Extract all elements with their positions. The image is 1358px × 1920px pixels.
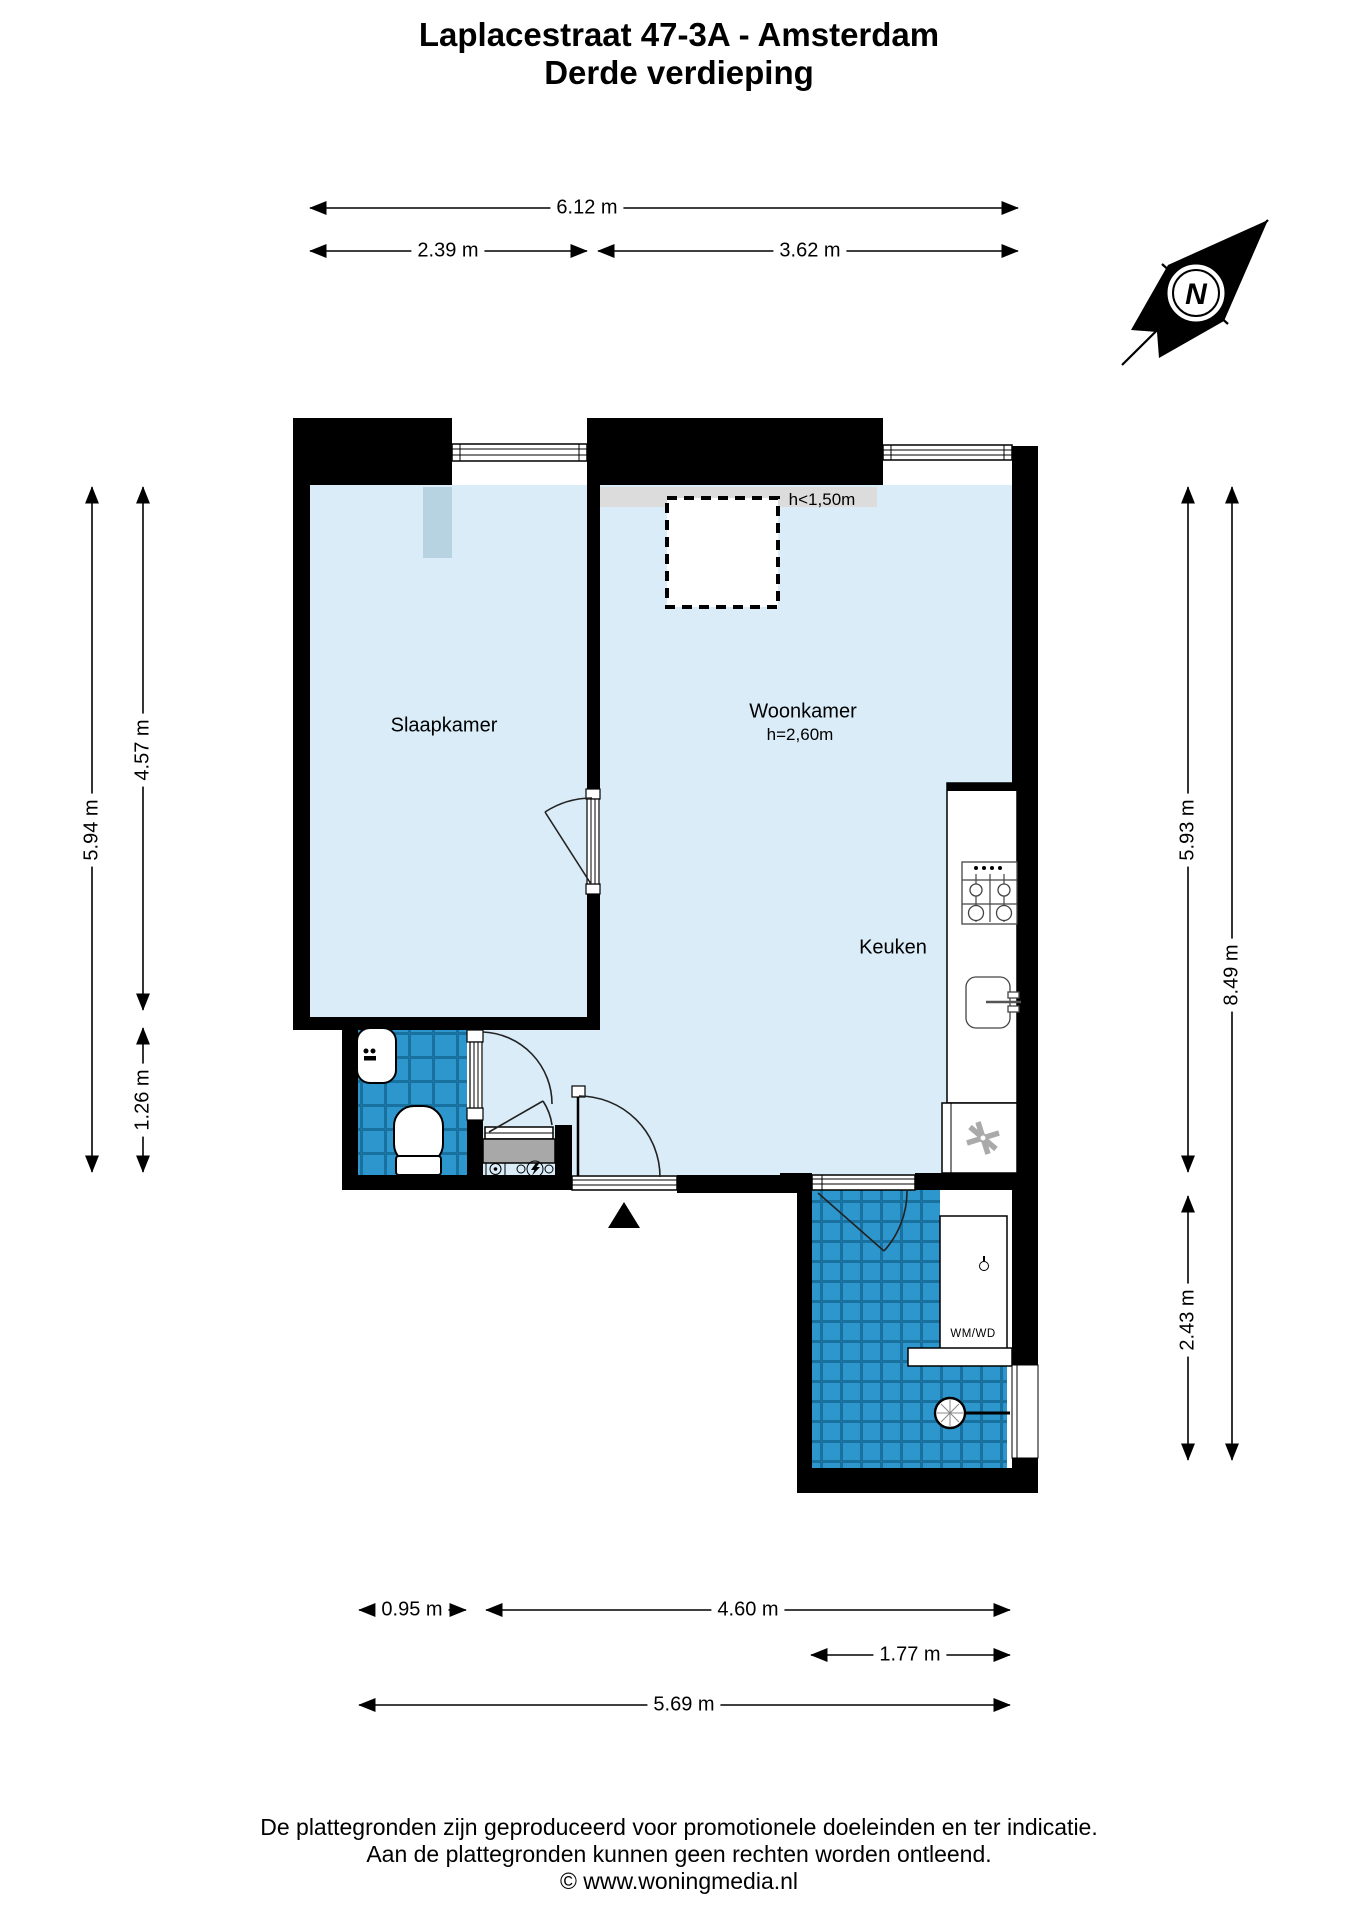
kitchen-counter (947, 783, 1017, 1103)
laundry-side-opening (1012, 1365, 1038, 1458)
footer-line1: De plattegronden zijn geproduceerd voor … (0, 1814, 1358, 1841)
room-label-woonkamer-height: h=2,60m (767, 725, 834, 745)
dim-label-left-lower: 1.26 m (132, 1063, 155, 1136)
wall-divider-upper (587, 485, 600, 790)
wall-divider-lower (587, 894, 600, 1030)
kitchen (942, 783, 1021, 1173)
label-washer: WM/WD (950, 1328, 995, 1340)
dim-label-bottom-bath: 0.95 m (375, 1599, 448, 1622)
dim-label-left-total: 5.94 m (81, 793, 104, 866)
wall-top-mid (587, 418, 883, 485)
wall-meter-jamb (555, 1125, 572, 1190)
entrance-arrow (608, 1202, 640, 1228)
dim-label-bottom-total: 5.69 m (647, 1694, 720, 1717)
chimney-duct (423, 487, 452, 558)
dim-label-right-lower: 2.43 m (1177, 1283, 1200, 1356)
wall-laundry-bottom (797, 1468, 1038, 1493)
room-label-keuken: Keuken (859, 937, 927, 960)
slaapkamer-window (452, 444, 587, 461)
laundry-shelf (908, 1348, 1012, 1366)
room-floors (310, 485, 1012, 1468)
dim-label-top-left: 2.39 m (411, 240, 484, 263)
skylight-dashed-outline (667, 498, 778, 607)
dim-label-top-right: 3.62 m (773, 240, 846, 263)
woonkamer-window (883, 445, 1012, 460)
footer-line2: Aan de plattegronden kunnen geen rechten… (0, 1841, 1358, 1868)
wall-laundry-left (797, 1190, 812, 1493)
toilet-cistern (396, 1156, 441, 1175)
footer-copyright: © www.woningmedia.nl (0, 1868, 1358, 1895)
footer-disclaimer: De plattegronden zijn geproduceerd voor … (0, 1814, 1358, 1895)
wall-slaapkamer-bottom (293, 1017, 600, 1030)
room-label-woonkamer: Woonkamer (749, 701, 856, 724)
kitchen-counter-edge (947, 783, 1017, 791)
laundry-corner (940, 1190, 1014, 1217)
compass-rose: N (1122, 220, 1268, 365)
wall-bathroom-left (342, 1030, 358, 1190)
wall-top-left (293, 418, 452, 485)
dim-label-bottom-laundry: 1.77 m (873, 1644, 946, 1667)
floorplan-page: Laplacestraat 47-3A - Amsterdam Derde ve… (0, 0, 1358, 1920)
dim-label-right-upper: 5.93 m (1177, 793, 1200, 866)
bathroom-sink (357, 1028, 396, 1083)
floorplan-drawing: N (0, 0, 1358, 1920)
wall-bathroom-right-lower (467, 1120, 483, 1190)
wall-bottom-left (342, 1175, 572, 1190)
label-low-height: h<1,50m (789, 490, 856, 510)
wall-laundry-top (915, 1173, 1038, 1190)
wall-left (293, 418, 310, 1030)
wall-right-lower (1012, 1190, 1038, 1365)
meter-cabinet-box (483, 1139, 555, 1163)
stove-icon (962, 862, 1017, 924)
front-door-threshold (572, 1176, 677, 1190)
dim-label-bottom-mid: 4.60 m (711, 1599, 784, 1622)
dim-label-left-upper: 4.57 m (132, 713, 155, 786)
wall-laundry-corner (780, 1173, 812, 1192)
room-label-slaapkamer: Slaapkamer (391, 715, 498, 738)
slaapkamer-floor (310, 485, 587, 1017)
laundry-door-band (812, 1175, 915, 1190)
dim-label-top-total: 6.12 m (550, 197, 623, 220)
dim-label-right-total: 8.49 m (1221, 938, 1244, 1011)
compass-north-letter: N (1185, 278, 1208, 311)
